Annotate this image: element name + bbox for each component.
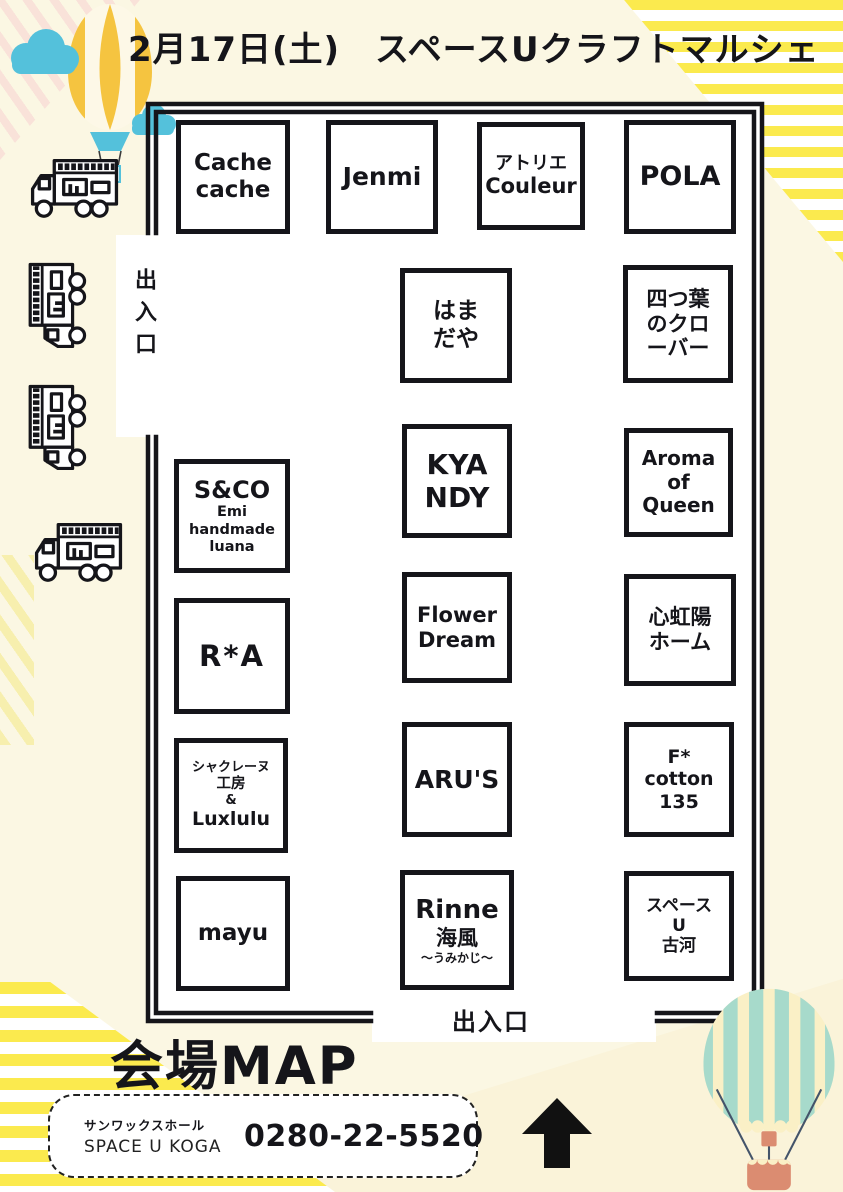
booth-s-and-co: S&CO Emi handmade luana (174, 459, 290, 573)
booth-mayu: mayu (176, 876, 290, 991)
venue-text: サンワックスホール SPACE U KOGA (84, 1115, 232, 1157)
booth-atelier-couleur: アトリエ Couleur (477, 122, 585, 230)
booth-f-cotton-135: F* cotton 135 (624, 722, 734, 837)
venue-name: SPACE U KOGA (84, 1137, 232, 1157)
booth-kyandy: KYA NDY (402, 424, 512, 538)
booth-yotsuba-no-clover: 四つ葉 のクロ ーバー (623, 265, 733, 383)
booth-pola: POLA (624, 120, 736, 234)
booth-arus: ARU'S (402, 722, 512, 837)
venue-hall-name: サンワックスホール (84, 1115, 232, 1134)
booth-rinne-umikaji: Rinne 海風 〜うみかじ〜 (400, 870, 514, 990)
entrance-label-bottom: 出入口 (452, 1002, 530, 1037)
booth-r-a: R*A (174, 598, 290, 714)
page-title: 2月17日(土) スペースUクラフトマルシェ (128, 22, 820, 71)
booth-hamadaya: はま だや (400, 268, 512, 383)
booth-flower-dream: Flower Dream (402, 572, 512, 683)
booth-space-u-koga: スペース U 古河 (624, 871, 734, 981)
hot-air-balloon-icon (694, 983, 843, 1192)
event-map-poster: 2月17日(土) スペースUクラフトマルシェ 出入口 出入口 Cache cac… (0, 0, 843, 1192)
phone-number: 0280-22-5520 (244, 1119, 484, 1154)
venue-badge: サンワックスホール SPACE U KOGA 0280-22-5520 (48, 1094, 478, 1178)
booth-shinkouyou-home: 心虹陽 ホーム (624, 574, 736, 686)
up-arrow-icon (522, 1098, 592, 1168)
map-heading: 会場MAP (110, 1024, 359, 1100)
entrance-label-left: 出入口 (127, 268, 159, 364)
booth-aroma-of-queen: Aroma of Queen (624, 428, 733, 537)
booth-cache-cache: Cache cache (176, 120, 290, 234)
booth-jenmi: Jenmi (326, 120, 438, 234)
booth-chacrene-koubou-luxlulu: シャクレーヌ 工房 & Luxlulu (174, 738, 288, 853)
